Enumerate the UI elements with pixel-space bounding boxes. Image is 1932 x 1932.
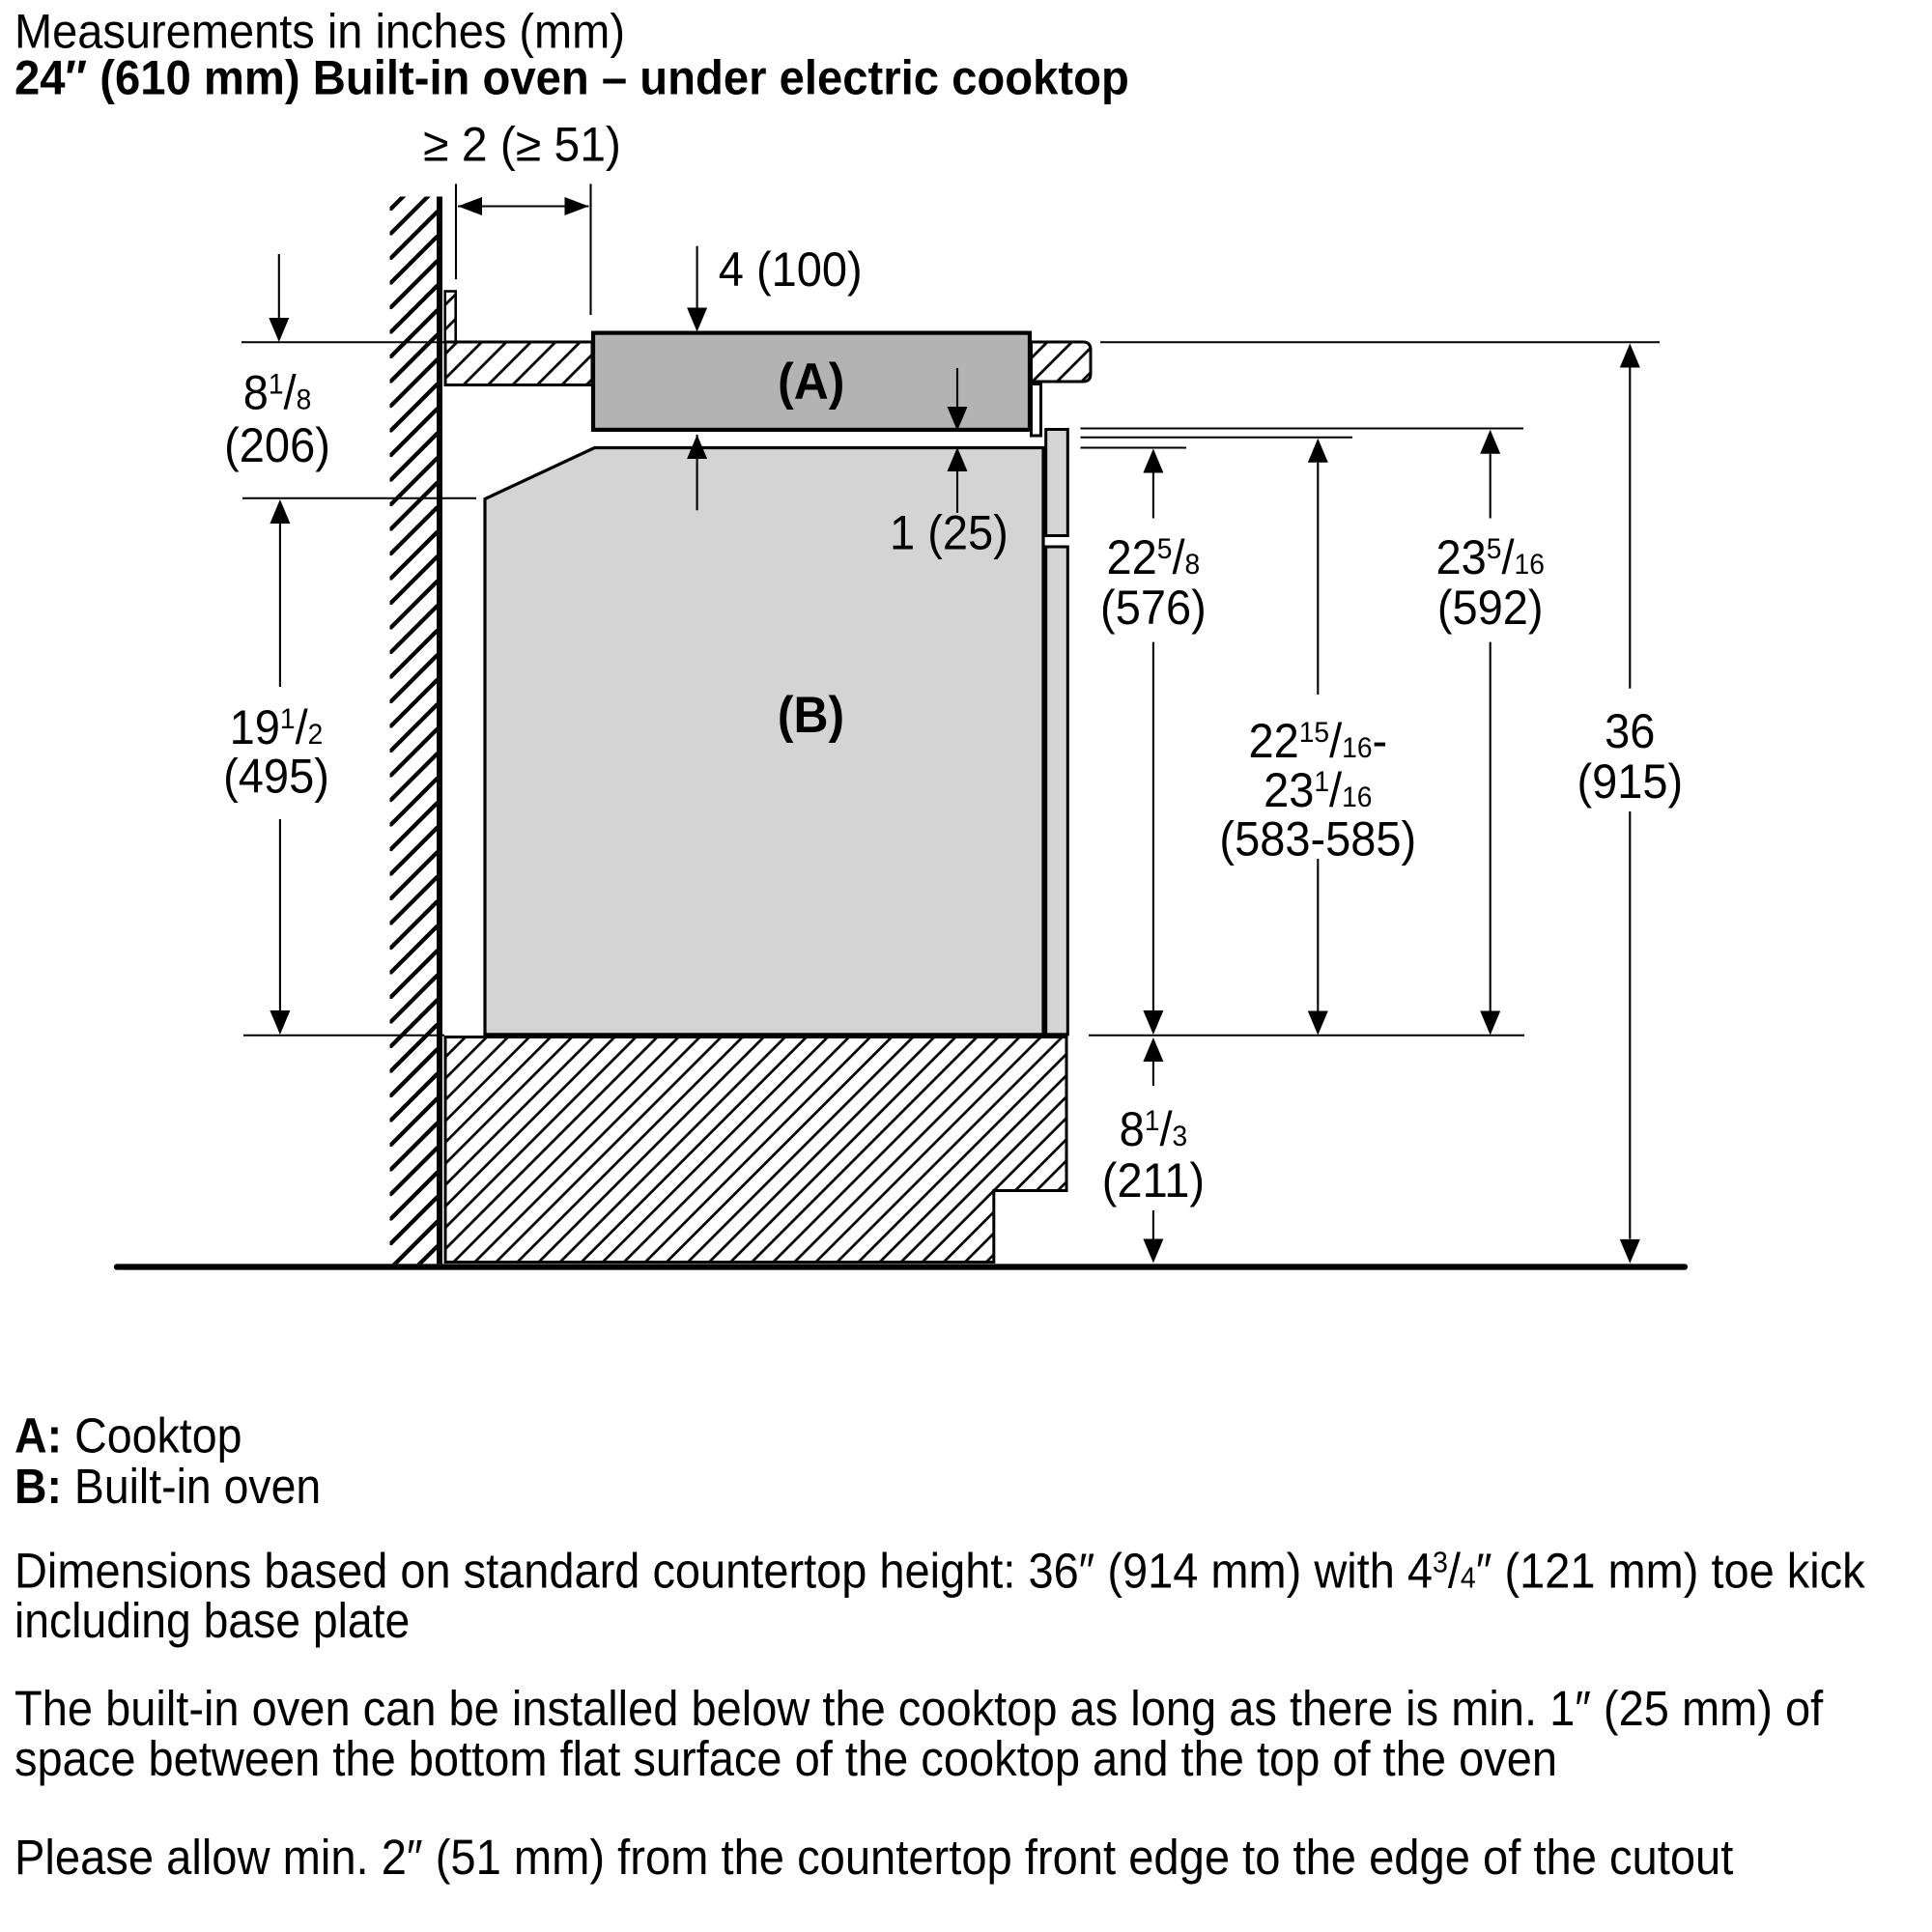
svg-text:Please allow min. 2″ (51 mm) f: Please allow min. 2″ (51 mm) from the co… [14,1831,1734,1885]
svg-text:(B): (B) [778,686,844,744]
svg-text:(206): (206) [224,419,330,473]
svg-text:24″ (610 mm) Built-in oven – u: 24″ (610 mm) Built-in oven – under elect… [14,51,1129,105]
svg-text:Dimensions based on standard c: Dimensions based on standard countertop … [14,1545,1865,1599]
svg-text:space between the bottom flat: space between the bottom flat surface of… [14,1732,1557,1786]
svg-text:81/8: 81/8 [243,366,312,420]
svg-text:235/16: 235/16 [1435,531,1544,585]
svg-text:2215/16-: 2215/16- [1248,715,1387,769]
svg-text:(583-585): (583-585) [1219,812,1416,867]
svg-text:191/2: 191/2 [230,701,324,755]
svg-text:(A): (A) [778,353,844,411]
svg-text:The built-in oven can be insta: The built-in oven can be installed below… [14,1682,1824,1736]
svg-text:231/16: 231/16 [1264,764,1372,818]
svg-text:A: Cooktop: A: Cooktop [14,1409,241,1463]
svg-text:B: Built-in oven: B: Built-in oven [14,1460,321,1514]
svg-text:(211): (211) [1102,1154,1205,1208]
svg-text:(495): (495) [223,750,329,804]
svg-text:(915): (915) [1577,755,1683,810]
svg-text:1 (25): 1 (25) [890,506,1009,560]
svg-text:≥ 2 (≥ 51): ≥ 2 (≥ 51) [423,119,621,172]
svg-text:225/8: 225/8 [1107,531,1201,585]
svg-text:36: 36 [1605,705,1655,759]
svg-text:4 (100): 4 (100) [719,242,863,297]
svg-text:81/3: 81/3 [1120,1103,1188,1157]
svg-text:(592): (592) [1437,582,1544,636]
svg-text:including base plate: including base plate [14,1594,410,1649]
svg-text:(576): (576) [1100,582,1207,636]
